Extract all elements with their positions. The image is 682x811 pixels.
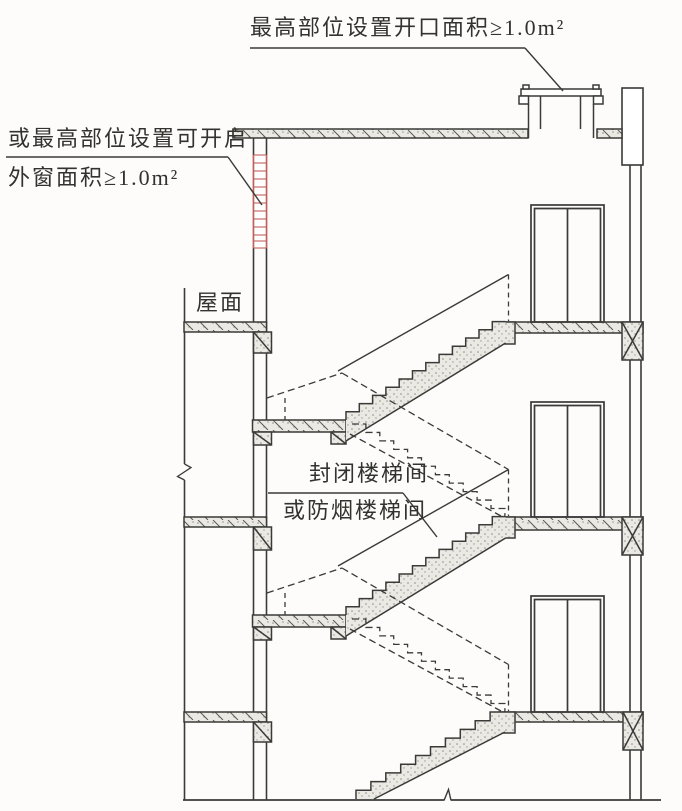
right-outer-wall [622, 88, 643, 800]
stair-note-line1-label: 封闭楼梯间 [309, 461, 429, 487]
stair-section-drawing: 最高部位设置开口面积≥1.0m² 或最高部位设置可开启 外窗面积≥1.0m² 屋… [0, 0, 682, 811]
left-outer-wall [178, 288, 192, 800]
stair-note-line2-label: 或防烟楼梯间 [283, 498, 427, 524]
stairwell-roof-slab [233, 129, 622, 138]
left-note-line2-label: 外窗面积≥1.0m² [8, 165, 179, 191]
section-linework [0, 0, 682, 811]
top-note-leader [250, 48, 563, 91]
ground-line [183, 790, 661, 801]
roof-skylight [519, 85, 603, 138]
top-note-label: 最高部位设置开口面积≥1.0m² [250, 15, 565, 41]
stair-flight-bottom [356, 712, 505, 799]
stair-flight-upper [346, 322, 506, 441]
left-note-line1-label: 或最高部位设置可开启 [8, 126, 248, 152]
left-floor-slabs [184, 322, 272, 742]
roof-label: 屋面 [196, 290, 244, 316]
right-floor-slabs [499, 322, 643, 750]
stair-doors [531, 205, 604, 712]
stair-flight-middle [346, 517, 506, 636]
